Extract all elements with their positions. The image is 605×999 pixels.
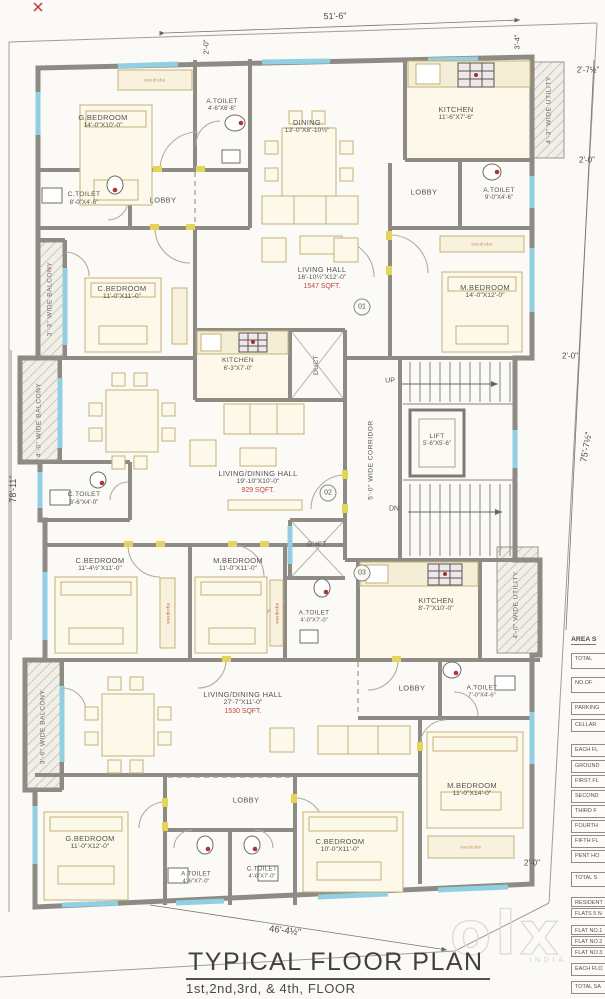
balcony2-label: 4'-0" WIDE BALCONY <box>36 383 43 458</box>
room-label-atoilet3r: A.TOILET 7'-0"X4'-6" <box>467 684 498 699</box>
area-table-row: FLAT NO.3 <box>571 947 605 957</box>
room-label-livingdining2: LIVING/DINING HALL 19'-10"X10'-0" 929 SQ… <box>218 469 297 495</box>
dim-left-height: 78'-11" <box>8 475 18 502</box>
dim-top-width: 51'-6" <box>323 11 346 22</box>
room-label-ctoilet3: C.TOILET 4'-6"X7'-0" <box>247 866 277 881</box>
area-table-row: FLAT NO.2 <box>571 936 605 946</box>
red-corner-mark <box>34 3 42 11</box>
room-label-atoilet1r: A.TOILET 9'-0"X4'-6" <box>483 187 515 203</box>
room-label-ctoilet1: C.TOILET 8'-0"X4'-6" <box>68 191 101 207</box>
drawing-title-block: TYPICAL FLOOR PLAN 1st,2nd,3rd, & 4th, F… <box>186 948 490 996</box>
area-table-row: EACH FL <box>571 744 605 757</box>
wardrobe-label: wardrobe <box>144 78 165 83</box>
utility1-label: 4'-3" WIDE UTILITY <box>546 76 553 144</box>
flat-number-02: 02 <box>320 485 337 502</box>
room-label-atoilet2: A.TOILET 4'-0"X7'-0" <box>299 609 330 624</box>
area-table-row: EACH FLO <box>571 963 605 976</box>
area-table-row: PENT HO <box>571 850 605 863</box>
room-label-lobby3: LOBBY <box>399 683 426 692</box>
room-label-kitchen3: KITCHEN 8'-7"X10'-0" <box>418 596 453 614</box>
area-table-row: THIRD F <box>571 805 605 818</box>
drawing-title: TYPICAL FLOOR PLAN <box>186 948 490 980</box>
balcony3-label: 3'-6" WIDE BALCONY <box>40 690 47 765</box>
area-table-row: FLAT NO.1 <box>571 925 605 935</box>
wardrobe-label: wardrobe <box>460 845 481 850</box>
room-label-lobby1: LOBBY <box>150 195 177 204</box>
area-table-row: TOTAL S <box>571 872 605 887</box>
room-label-dining1: DINING 13'-0"X8'-10½" <box>285 118 330 136</box>
room-label-atoilet1: A.TOILET 4'-6"X6'-6" <box>206 98 238 114</box>
room-label-kitchen1s: KITCHEN 6'-3"X7'-0" <box>222 357 254 373</box>
area-table-row: TOTAL <box>571 653 605 669</box>
wardrobe-label: wardrobe <box>275 602 280 623</box>
room-label-duct2: DUCT <box>307 541 327 549</box>
dim-top-right: 3'-4" <box>513 35 522 50</box>
room-label-lobby3b: LOBBY <box>233 795 260 804</box>
dim-right-1: 2'-7½" <box>577 66 600 75</box>
dim-bottom-right: 2'-0" <box>524 859 540 868</box>
room-label-kitchen1: KITCHEN 11'-6"X7'-6" <box>438 105 473 123</box>
room-label-gbedroom3: G.BEDROOM 11'-0"X12'-0" <box>65 834 114 852</box>
area-table-row: TOTAL SA <box>571 981 605 994</box>
area-table-row: FIRST FL <box>571 775 605 788</box>
room-label-mbedroom1: M.BEDROOM 14'-0"X12'-0" <box>460 283 510 301</box>
area-table-header: AREA S <box>571 636 596 645</box>
area-table-row: GROUND <box>571 760 605 773</box>
room-label-cbedroom2: C.BEDROOM 11'-4½"X11'-0" <box>76 556 125 574</box>
area-table-row: FLATS 5 N <box>571 908 605 918</box>
area-table-row: NO.OF <box>571 677 605 693</box>
room-label-mbedroom3: M.BEDROOM 11'-0"X14'-0" <box>447 781 497 799</box>
room-label-duct1: DUCT <box>313 355 321 375</box>
corridor-label: 5'-0" WIDE CORRIDOR <box>368 420 375 499</box>
area-table-row: FIFTH FL <box>571 835 605 848</box>
area-table-row: SECOND <box>571 790 605 803</box>
lift-label: LIFT 5'-6"X5'-6" <box>423 433 451 449</box>
room-label-livingdining3: LIVING/DINING HALL 27'-7"X11'-0" 1530 SQ… <box>203 690 282 716</box>
room-label-cbedroom3: C.BEDROOM 10'-0"X11'-0" <box>316 837 365 855</box>
area-table-row: RESIDENT <box>571 897 605 907</box>
room-label-mbedroom2: M.BEDROOM 11'-0"X11'-0" <box>213 556 263 574</box>
room-label-atoilet3: A.TOILET 4'-6"X7'-0" <box>181 871 211 886</box>
area-table-row: CELLAR <box>571 719 605 732</box>
flat-number-01: 01 <box>354 299 371 316</box>
dim-right-2: 2'-0" <box>579 156 595 165</box>
utility2-label: 4'-0" WIDE UTILITY <box>513 571 520 639</box>
floor-plan-page: olx INDIA G.BEDROOM 14'-0"X10'-0" A.TOIL… <box>0 0 605 999</box>
room-label-gbedroom1: G.BEDROOM 14'-0"X10'-0" <box>78 113 127 131</box>
room-label-lobby1r: LOBBY <box>411 187 438 196</box>
dim-right-3: 2'-0" <box>562 352 578 361</box>
room-label-cbedroom1: C.BEDROOM 11'-0"X11'-0" <box>98 284 147 302</box>
stairs-dn-label: DN <box>389 506 399 513</box>
wardrobe-label: wardrobe <box>471 242 492 247</box>
area-table-row: PARKING <box>571 702 605 715</box>
stairs-up-label: UP <box>385 378 395 385</box>
flat-number-03: 03 <box>354 565 371 582</box>
room-label-ctoilet2: C.TOILET 6'-6"X4'-0" <box>68 491 101 507</box>
drawing-subtitle: 1st,2nd,3rd, & 4th, FLOOR <box>186 981 490 996</box>
balcony1-label: 3'-3" WIDE BALCONY <box>47 262 54 337</box>
dim-top-left-inner: 2'-0" <box>202 40 211 55</box>
room-label-livinghall1: LIVING HALL 16'-10½"X12'-0" 1547 SQFT. <box>298 265 347 291</box>
wardrobe-label: wardrobe <box>166 602 171 623</box>
watermark-country: INDIA <box>529 955 567 964</box>
area-table-row: FOURTH <box>571 820 605 833</box>
